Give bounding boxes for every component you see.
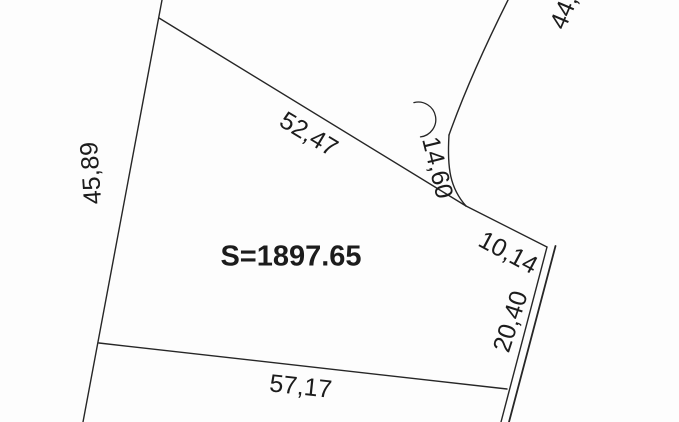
svg-text:44,2: 44,2 — [544, 0, 589, 33]
svg-text:52,47: 52,47 — [275, 106, 343, 162]
svg-text:10,14: 10,14 — [474, 226, 542, 280]
svg-text:S=1897.65: S=1897.65 — [220, 241, 361, 273]
svg-text:14,60: 14,60 — [416, 134, 458, 201]
svg-text:45,89: 45,89 — [75, 141, 107, 205]
svg-text:57,17: 57,17 — [268, 369, 333, 403]
